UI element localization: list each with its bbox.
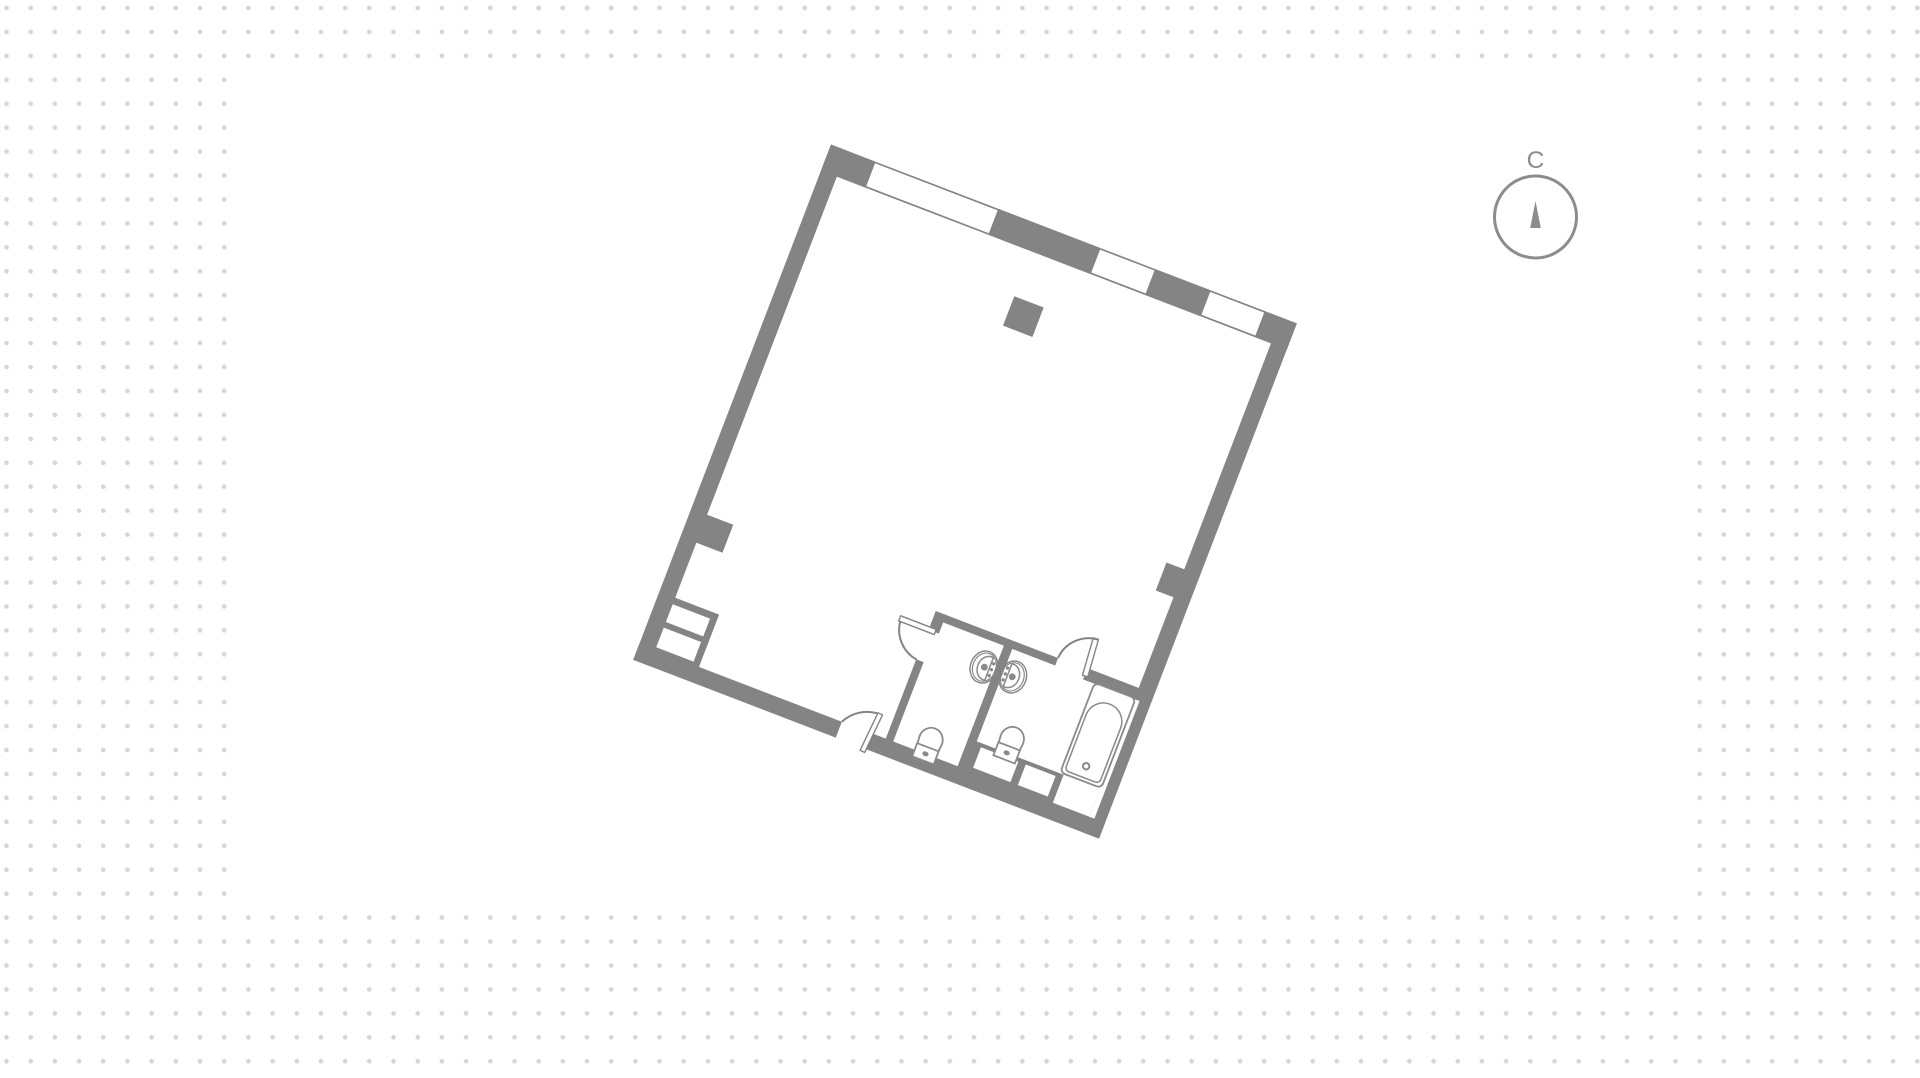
svg-text:С: С [1527, 147, 1545, 174]
